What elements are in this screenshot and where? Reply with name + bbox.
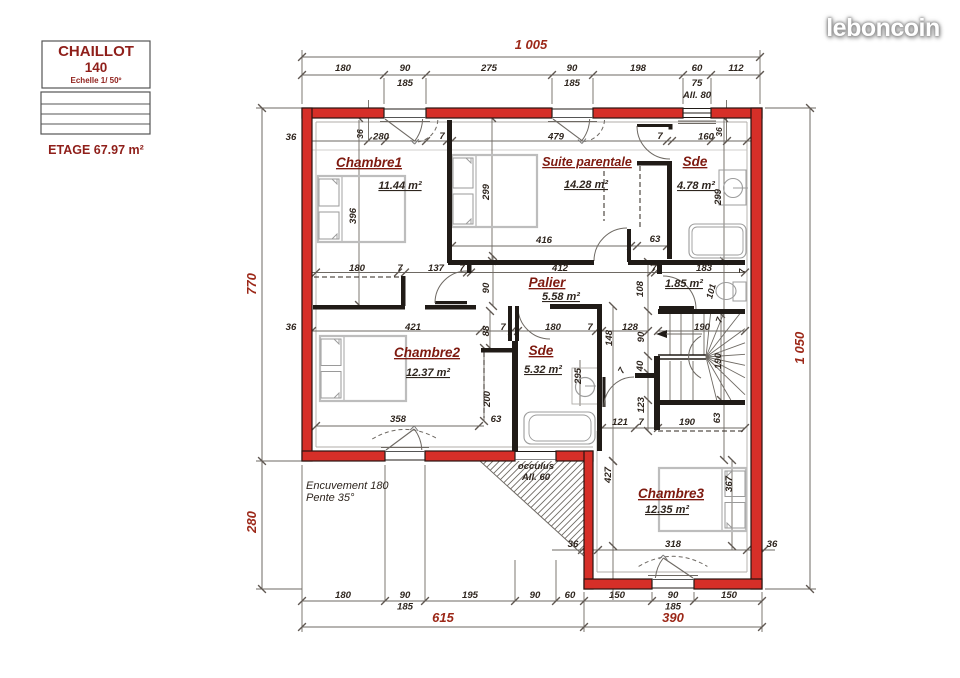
svg-text:123: 123 — [636, 396, 647, 413]
svg-text:36: 36 — [568, 539, 579, 550]
svg-text:7: 7 — [500, 322, 506, 333]
svg-text:All. 60: All. 60 — [521, 472, 551, 483]
svg-text:63: 63 — [491, 414, 502, 425]
svg-text:185: 185 — [397, 602, 414, 613]
svg-text:185: 185 — [564, 78, 581, 89]
svg-text:180: 180 — [335, 590, 352, 601]
svg-text:Pente 35°: Pente 35° — [306, 492, 355, 504]
svg-text:90: 90 — [567, 63, 578, 74]
svg-text:7: 7 — [638, 417, 644, 428]
svg-text:200: 200 — [482, 390, 493, 408]
svg-text:195: 195 — [462, 590, 479, 601]
svg-text:14.28 m²: 14.28 m² — [564, 179, 608, 191]
svg-text:190: 190 — [679, 417, 696, 428]
svg-text:121: 121 — [612, 417, 628, 428]
svg-text:12.35 m²: 12.35 m² — [645, 504, 689, 516]
svg-text:63: 63 — [712, 412, 723, 423]
svg-text:358: 358 — [390, 414, 407, 425]
svg-text:5.32 m²: 5.32 m² — [524, 364, 562, 376]
svg-text:198: 198 — [630, 63, 647, 74]
svg-text:occulus: occulus — [518, 461, 554, 472]
svg-text:280: 280 — [244, 510, 259, 533]
svg-text:1 050: 1 050 — [792, 331, 807, 364]
svg-text:295: 295 — [573, 367, 584, 385]
svg-text:140: 140 — [85, 60, 108, 75]
svg-text:112: 112 — [728, 63, 744, 74]
svg-text:36: 36 — [286, 132, 297, 143]
svg-text:Suite parentale: Suite parentale — [542, 155, 632, 169]
svg-text:7: 7 — [439, 131, 445, 142]
svg-text:421: 421 — [404, 322, 421, 333]
svg-text:479: 479 — [547, 132, 565, 143]
svg-text:148: 148 — [604, 329, 615, 346]
svg-text:150: 150 — [609, 590, 626, 601]
svg-text:7: 7 — [657, 131, 663, 142]
svg-text:299: 299 — [481, 183, 492, 201]
svg-text:180: 180 — [335, 63, 352, 74]
svg-text:390: 390 — [662, 610, 684, 625]
svg-text:180: 180 — [349, 263, 366, 274]
svg-text:Chambre3: Chambre3 — [638, 486, 705, 501]
svg-text:108: 108 — [635, 280, 646, 297]
svg-text:183: 183 — [696, 263, 713, 274]
svg-text:412: 412 — [551, 263, 569, 274]
svg-text:11.44 m²: 11.44 m² — [378, 180, 422, 192]
svg-text:137: 137 — [428, 263, 445, 274]
svg-text:90: 90 — [481, 282, 492, 293]
svg-text:90: 90 — [400, 63, 411, 74]
svg-text:7: 7 — [587, 322, 593, 333]
svg-text:40: 40 — [635, 360, 646, 372]
svg-text:770: 770 — [244, 272, 259, 294]
svg-text:128: 128 — [622, 322, 639, 333]
svg-text:318: 318 — [665, 539, 682, 550]
svg-text:280: 280 — [372, 132, 390, 143]
svg-text:Echelle 1/ 50º: Echelle 1/ 50º — [71, 76, 122, 85]
svg-text:416: 416 — [535, 235, 553, 246]
svg-text:Encuvement 180: Encuvement 180 — [306, 480, 389, 492]
svg-text:90: 90 — [400, 590, 411, 601]
svg-text:5.58 m²: 5.58 m² — [542, 291, 580, 303]
svg-text:7: 7 — [616, 365, 628, 375]
svg-text:Palier: Palier — [529, 275, 567, 290]
svg-text:160: 160 — [698, 132, 715, 143]
svg-text:90: 90 — [668, 590, 679, 601]
svg-text:7: 7 — [651, 263, 657, 274]
svg-text:63: 63 — [650, 234, 661, 245]
svg-text:88: 88 — [481, 325, 492, 336]
svg-text:190: 190 — [713, 352, 724, 369]
svg-text:1.85 m²: 1.85 m² — [665, 278, 703, 290]
svg-text:60: 60 — [692, 63, 703, 74]
svg-text:Chambre2: Chambre2 — [394, 345, 461, 360]
svg-text:427: 427 — [603, 466, 614, 484]
svg-text:190: 190 — [694, 322, 711, 333]
svg-text:1 005: 1 005 — [515, 37, 548, 52]
svg-text:36: 36 — [286, 322, 297, 333]
svg-text:36: 36 — [767, 539, 778, 550]
svg-text:7: 7 — [459, 263, 465, 274]
svg-text:ETAGE 67.97 m²: ETAGE 67.97 m² — [48, 143, 144, 157]
svg-text:All. 80: All. 80 — [682, 90, 712, 101]
svg-text:367: 367 — [724, 475, 735, 492]
svg-text:12.37 m²: 12.37 m² — [406, 367, 450, 379]
svg-text:75: 75 — [692, 78, 703, 89]
svg-text:Sde: Sde — [529, 343, 554, 358]
svg-text:90: 90 — [530, 590, 541, 601]
svg-text:Sde: Sde — [683, 154, 708, 169]
svg-text:615: 615 — [432, 610, 454, 625]
svg-text:4.78 m²: 4.78 m² — [676, 180, 715, 192]
svg-text:CHAILLOT: CHAILLOT — [58, 43, 134, 60]
svg-text:Chambre1: Chambre1 — [336, 155, 402, 170]
svg-text:180: 180 — [545, 322, 562, 333]
svg-text:36: 36 — [714, 127, 724, 137]
svg-text:185: 185 — [397, 78, 414, 89]
svg-text:7: 7 — [397, 263, 403, 274]
svg-text:396: 396 — [348, 207, 359, 224]
svg-text:150: 150 — [721, 590, 738, 601]
svg-text:36: 36 — [355, 129, 365, 139]
svg-text:7: 7 — [737, 267, 747, 273]
svg-text:90: 90 — [636, 331, 647, 342]
svg-text:60: 60 — [565, 590, 576, 601]
svg-text:101: 101 — [704, 283, 718, 300]
svg-text:275: 275 — [480, 63, 498, 74]
